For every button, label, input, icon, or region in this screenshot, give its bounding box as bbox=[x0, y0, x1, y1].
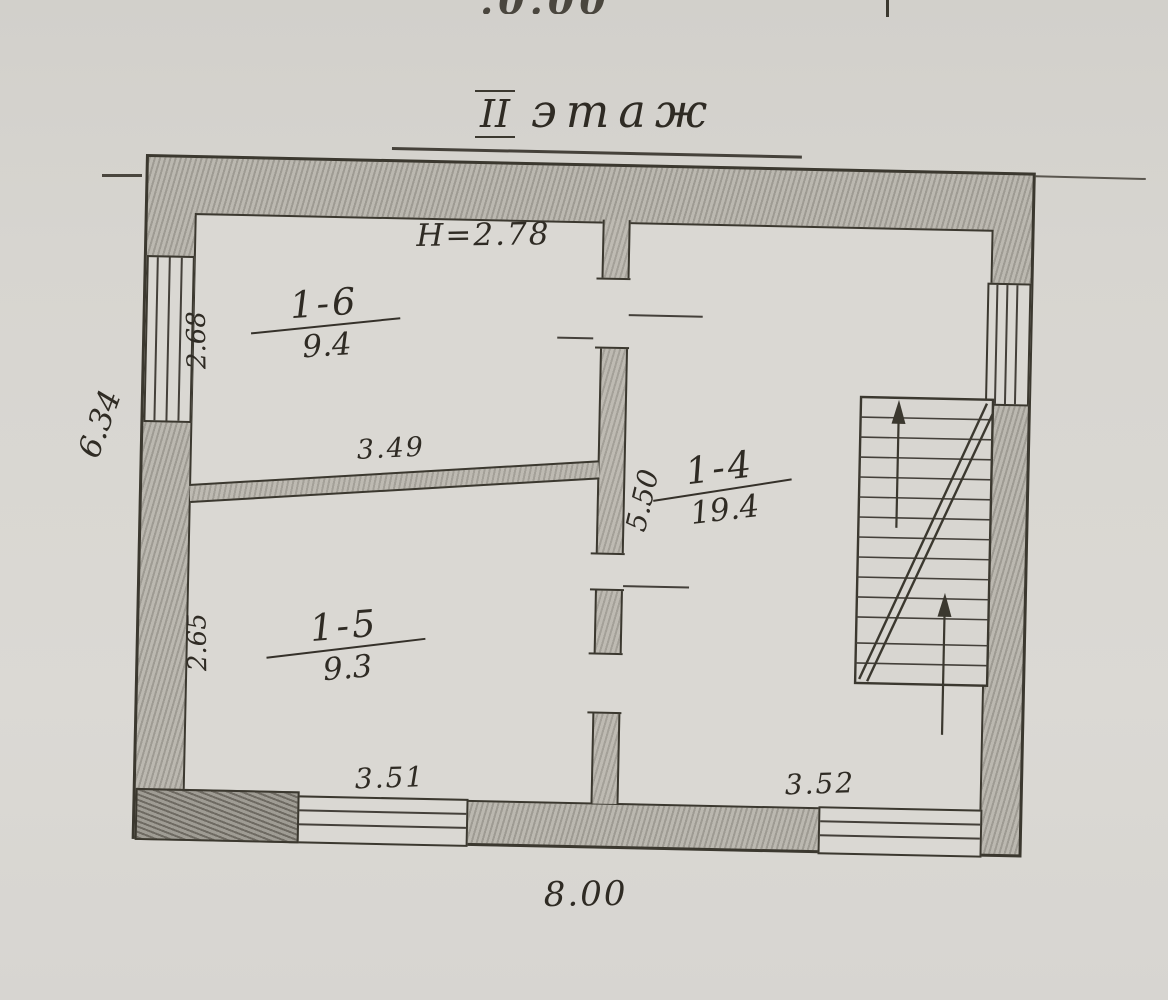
dimension-building-width: 8.00 bbox=[510, 873, 661, 915]
dimension-room-1-6-width: 3.49 bbox=[325, 430, 456, 467]
window-right-wall bbox=[985, 283, 1032, 407]
window-pane-line bbox=[820, 820, 980, 825]
window-pane-line bbox=[165, 258, 170, 421]
dimension-building-side: 6.34 bbox=[64, 362, 135, 486]
room-label-1-6: 1-6 9.4 bbox=[248, 279, 403, 368]
window-pane-line bbox=[1014, 285, 1018, 404]
floor-numeral: II bbox=[475, 90, 515, 138]
window-bottom-left bbox=[289, 795, 469, 847]
window-pane-line bbox=[153, 257, 158, 420]
window-pane-line bbox=[994, 285, 998, 404]
window-pane-line bbox=[820, 834, 980, 839]
floor-title-word: этаж bbox=[531, 84, 716, 138]
room-label-1-4: 1-4 19.4 bbox=[648, 440, 796, 535]
door-opening-lower bbox=[587, 652, 622, 714]
title-underline bbox=[392, 147, 802, 159]
window-pane-line bbox=[1004, 285, 1008, 404]
room-label-1-5: 1-5 9.3 bbox=[263, 600, 429, 692]
scanned-floorplan-document: { "page": { "cropped_top_text": ".0.00" … bbox=[0, 0, 1168, 1000]
window-pane-line bbox=[291, 823, 466, 829]
window-bottom-right bbox=[817, 806, 982, 857]
dimension-room-1-5-depth: 2.65 bbox=[182, 582, 214, 702]
cropped-elevation-mark: .0.00 bbox=[480, 0, 680, 14]
window-pane-line bbox=[291, 809, 466, 815]
cropped-elevation-text: .0.00 bbox=[480, 0, 680, 14]
dimension-room-1-5-width: 3.51 bbox=[325, 759, 456, 796]
dimension-room-1-4-width: 3.52 bbox=[759, 765, 880, 802]
page-title: IIэтаж bbox=[475, 84, 716, 138]
door-opening-upper bbox=[595, 277, 630, 349]
dimension-room-1-6-depth: 2.68 bbox=[181, 280, 213, 400]
staircase bbox=[850, 395, 997, 738]
top-edge-tick bbox=[886, 0, 889, 17]
ceiling-height-note: H=2.78 bbox=[416, 216, 551, 254]
shaded-corner-wall bbox=[135, 788, 300, 843]
floor-plan: H=2.78 1-6 9.4 1-5 9.3 1-4 19.4 2.68 3.4… bbox=[132, 154, 1036, 857]
door-opening-middle bbox=[590, 552, 625, 591]
left-dimension-tick bbox=[102, 174, 142, 177]
